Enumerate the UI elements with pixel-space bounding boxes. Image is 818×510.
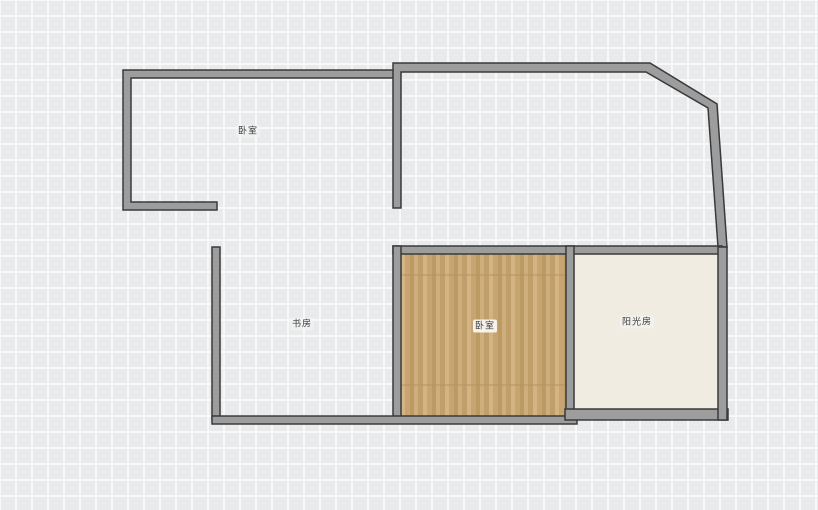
floor-sunroom[interactable] (574, 254, 718, 409)
wall-divider-bedroom-sunroom[interactable] (566, 246, 574, 416)
room-label-study[interactable]: 书房 (290, 318, 314, 331)
wall-outer-top-right[interactable] (393, 63, 727, 247)
wall-middle-top[interactable] (393, 246, 722, 254)
wall-study-left[interactable] (212, 247, 220, 419)
floorplan-drawing (0, 0, 818, 510)
floorplan-canvas[interactable]: 卧室 书房 卧室 阳光房 (0, 0, 818, 510)
wall-sunroom-right[interactable] (718, 247, 727, 420)
floor-bedroom-wood[interactable] (401, 254, 566, 416)
room-label-bedroom-main[interactable]: 卧室 (473, 320, 497, 333)
room-label-sunroom[interactable]: 阳光房 (620, 316, 654, 329)
wall-bedroom-main-left[interactable] (393, 246, 401, 420)
wall-bottom-study[interactable] (212, 416, 577, 424)
wall-bedroom-topleft[interactable] (123, 70, 394, 210)
room-label-bedroom-top-left[interactable]: 卧室 (236, 125, 260, 138)
wall-bottom-sunroom[interactable] (565, 409, 728, 420)
